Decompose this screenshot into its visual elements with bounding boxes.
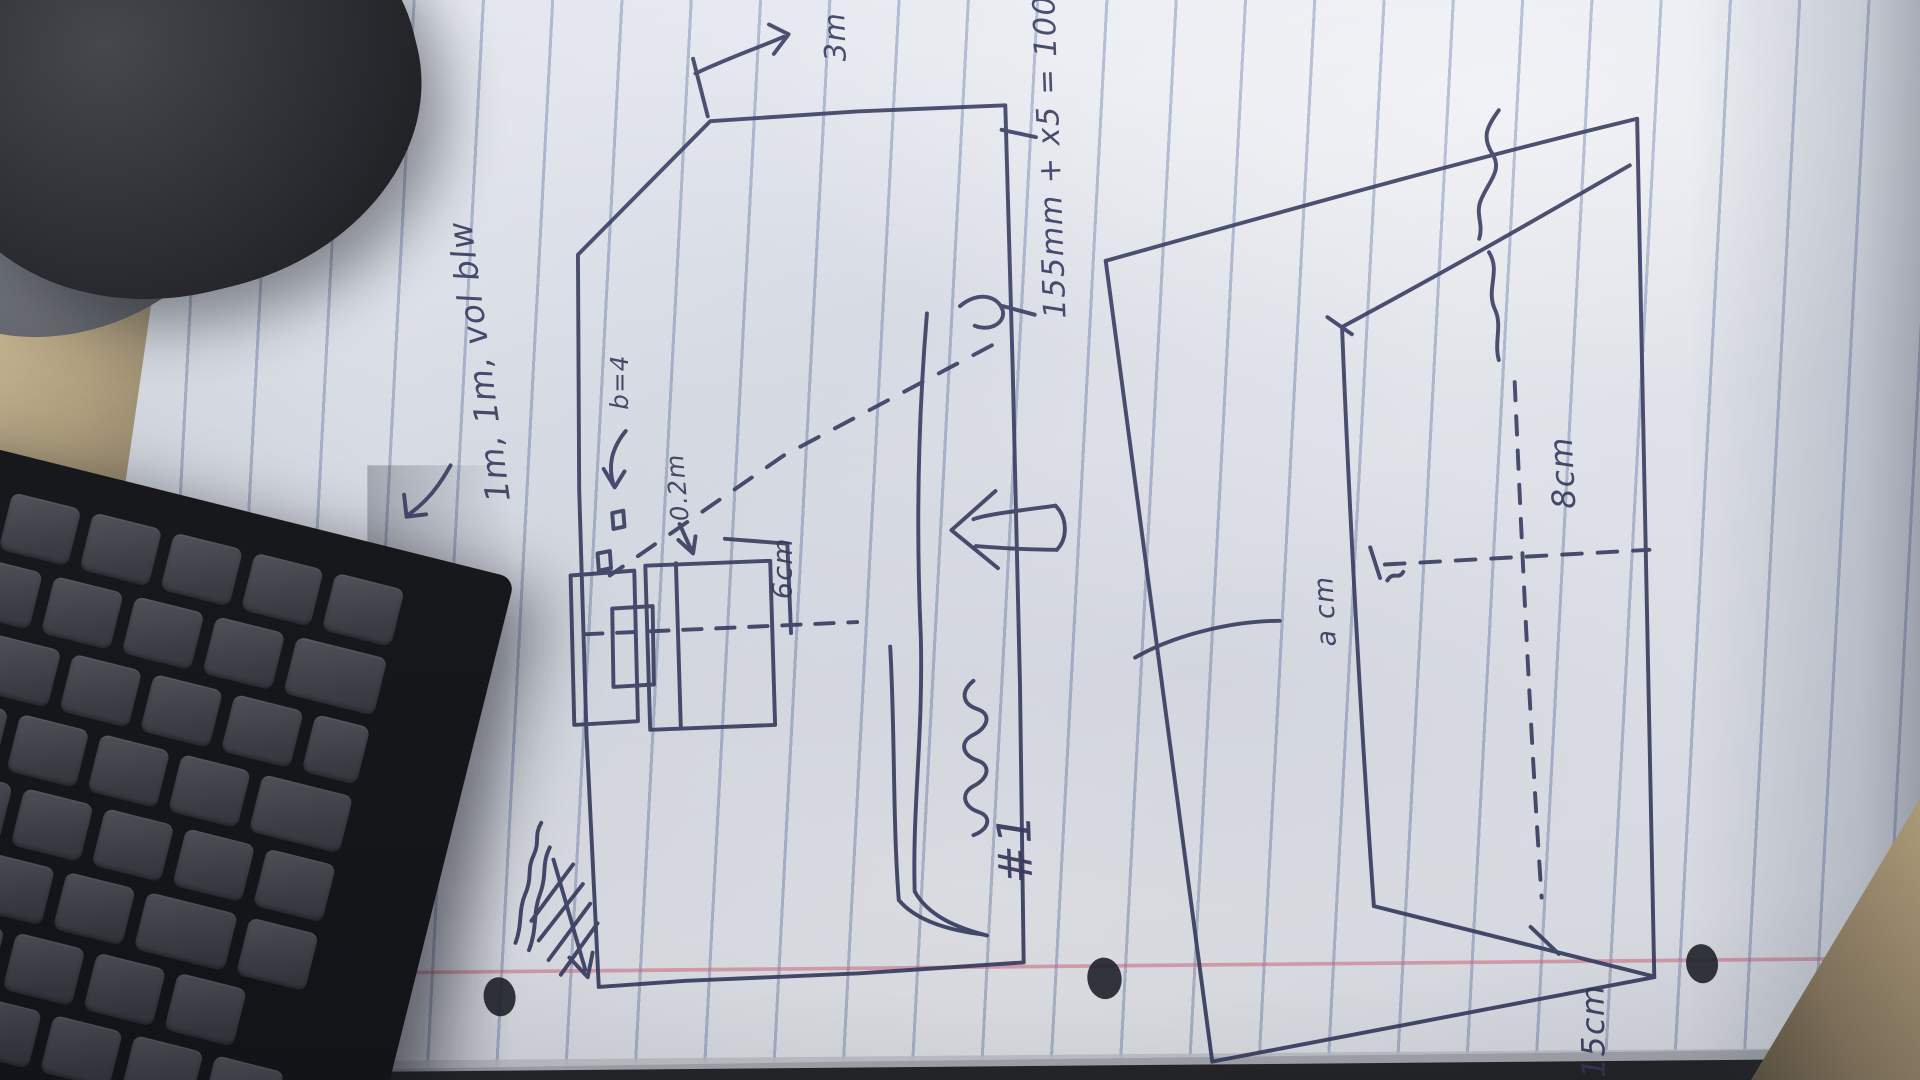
p2-tick-mark-b [612,511,624,529]
keyboard-key [168,754,251,828]
p2-water-line-1 [914,313,987,935]
keyboard-key [0,912,5,986]
p2-hidden-centerline [584,622,857,634]
p1-dashed-vertical [1515,382,1542,898]
keyboard-key [221,694,304,768]
keyboard-key [172,828,255,902]
p1-left-edge [1106,261,1213,1062]
keyboard-key [202,616,285,690]
p1-break-zigzag [1479,110,1499,239]
p1-dashed-horizontal-tick [1370,547,1380,578]
p2-corner-scribble-1 [516,823,542,943]
keyboard-key [0,556,43,630]
transform-arrow-head [951,491,998,568]
keyboard-key [140,674,223,748]
p1-inner-vertical [1342,327,1374,906]
keyboard-key [87,734,170,808]
p1-height-label: 8cm [1543,436,1583,510]
transform-arrow-tail [1056,506,1065,550]
keyboard-key [79,512,162,586]
p2-b-arrowhead [604,469,625,487]
keyboard-key [6,714,89,788]
p2-water-hook [960,297,1003,328]
keyboard-key [241,553,324,627]
keyboard-key [253,848,336,922]
photo-of-desk: 3m 155mm + x5 = 100 1m, 1m, vol blw b=4 … [0,0,1920,1080]
p2-box-width-label: 0.2m [660,452,695,522]
p2-b-arrow [611,431,626,485]
p1-tick-squiggle [1387,572,1403,581]
p2-outline [578,105,1024,987]
p1-inner-bottom [1374,906,1652,976]
keyboard-key [0,852,55,926]
keyboard-key [91,808,174,882]
p1-title-label: #1 [987,812,1043,885]
p1-right-edge [1637,119,1654,977]
p2-box-inner-line [676,563,681,727]
p1-break-squiggle [1489,252,1499,360]
hole-punch-2 [1085,955,1125,1001]
keyboard-key [53,872,136,946]
p1-dashed-horizontal [1385,550,1649,565]
keyboard-key [236,917,319,991]
keyboard-key [83,952,166,1026]
keyboard-key [11,788,94,862]
keyboard-key [121,596,204,670]
p2-length-label: 3m [817,11,853,62]
keyboard-key [164,973,247,1047]
keyboard-key [0,768,13,842]
p1-top-label: a cm [1309,575,1343,648]
keyboard-key [0,634,61,708]
p2-box-height-label: 6cm [768,537,799,599]
p1-base-label: 15cm [1575,984,1613,1079]
keyboard-key [2,932,85,1006]
keyboard-key [59,654,142,728]
keyboard-key [40,1015,123,1080]
keyboard-key [0,472,1,546]
hole-punch-3 [1684,942,1721,985]
keyboard-key [0,694,9,768]
p2-water-scallops [964,681,987,835]
hole-punch-1 [481,975,518,1018]
p1-top-edge [1106,119,1637,261]
keyboard-key [41,576,124,650]
p2-note-arrowhead [404,495,426,517]
keyboard-key [322,573,405,647]
p2-length-arrow [696,37,784,74]
p2-note-arrow [409,465,451,514]
p2-b-label: b=4 [605,354,634,409]
keyboard-key [0,995,42,1069]
p2-tick-mark-a [598,551,611,571]
keyboard-key [0,492,82,566]
p2-edge-tick-2 [1003,306,1035,315]
p2-box-large [645,561,775,730]
keyboard-key [302,714,371,785]
keyboard-key [160,532,243,606]
